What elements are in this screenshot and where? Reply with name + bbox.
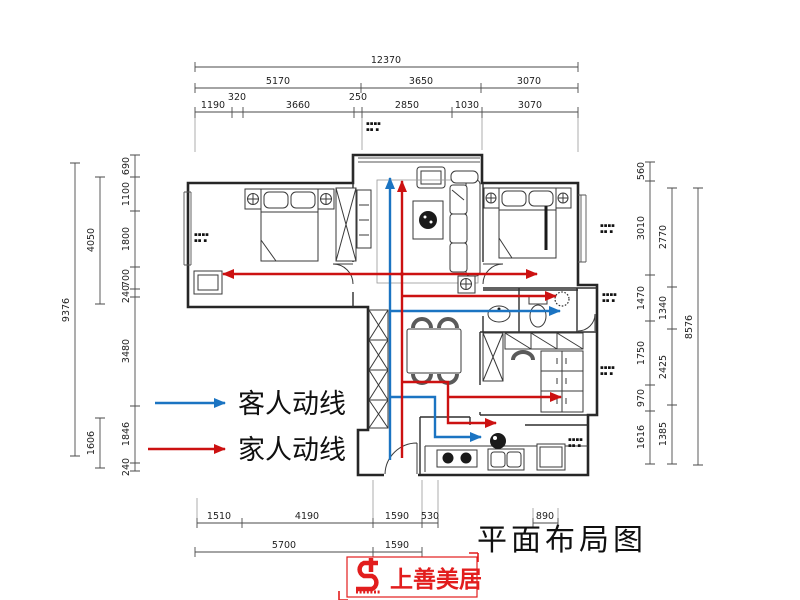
dim-top-row3-0: 1190	[201, 100, 225, 111]
dim-left-total: 9376	[61, 298, 72, 322]
dim-top-row3-6: 3070	[518, 100, 542, 111]
dim-left-inner-6: 1846	[121, 422, 132, 446]
legend-family-label: 家人动线	[238, 435, 346, 465]
kitchen	[425, 433, 588, 472]
annotation: ▪▪ ▪	[600, 229, 613, 235]
desk-chair	[513, 352, 533, 360]
wardrobe-left	[336, 188, 356, 261]
entry-opening	[384, 470, 418, 480]
family-path-kitchen	[402, 382, 496, 423]
dim-bottom-offset: 890	[536, 511, 554, 522]
dim-right-mid-0: 2770	[658, 225, 669, 249]
dim-left-inner-2: 1800	[121, 227, 132, 251]
dim-top-row2-1: 3650	[409, 76, 433, 87]
shower-head	[555, 292, 569, 306]
dim-bottom-row2-1: 1590	[385, 540, 409, 551]
dim-left-inner-0: 690	[121, 157, 132, 175]
cabinet-small	[194, 271, 222, 294]
dim-top-row3-5: 1030	[455, 100, 479, 111]
logo-monogram	[356, 558, 380, 592]
dim-top-row3-1: 320	[228, 92, 246, 103]
bathroom-sink	[488, 306, 510, 322]
dim-bottom-row1-1: 4190	[295, 511, 319, 522]
dimensions-top: 12370 5170 3650 3070 1190 320 3660 250 2…	[195, 55, 578, 152]
legend: 客人动线 家人动线	[148, 389, 346, 465]
dim-bottom-row1-2: 1590	[385, 511, 409, 522]
dim-right-inner-3: 1750	[636, 341, 647, 365]
annotation: ▪▪ ▪	[600, 371, 613, 377]
dining-set	[407, 319, 461, 383]
dim-right-total: 8576	[684, 315, 695, 339]
dim-left-mid-0: 4050	[86, 228, 97, 252]
dim-left-inner-1: 1100	[121, 182, 132, 206]
page-title: 平面布局图	[477, 524, 647, 557]
dim-left-inner-4: 240	[121, 285, 132, 303]
coffee-table	[413, 201, 443, 239]
bed-right	[484, 188, 571, 258]
study-wardrobes	[483, 333, 583, 412]
dim-right-inner-0: 560	[636, 162, 647, 180]
bed-left	[245, 189, 334, 261]
annotation: ▪▪ ▪	[602, 298, 615, 304]
tv	[417, 167, 445, 188]
dim-bottom-row1-3: 530	[421, 511, 439, 522]
dimensions-left: 690 1100 1800 700 240 3480 1846 240 4050…	[61, 155, 140, 476]
floor-plan-page: 12370 5170 3650 3070 1190 320 3660 250 2…	[0, 0, 800, 600]
pot	[490, 433, 506, 449]
dim-left-inner-3: 700	[121, 269, 132, 287]
annotation: ▪▪ ▪	[194, 238, 207, 244]
dim-right-inner-5: 1616	[636, 425, 647, 449]
dim-right-inner-2: 1470	[636, 286, 647, 310]
dim-right-mid-3: 1385	[658, 422, 669, 446]
storage-cabinets	[369, 310, 388, 428]
dim-right-inner-4: 970	[636, 389, 647, 407]
dimensions-right: 560 3010 1470 1750 970 1616 2770 1340 24…	[636, 162, 703, 465]
dim-top-row3-3: 250	[349, 92, 367, 103]
dim-bottom-row1-0: 1510	[207, 511, 231, 522]
dim-top-row3-2: 3660	[286, 100, 310, 111]
logo-name: 上善美居	[390, 566, 482, 592]
tv-cabinet	[357, 190, 371, 248]
fridge	[537, 444, 565, 470]
dim-left-mid-1: 1606	[86, 431, 97, 455]
dim-right-mid-2: 2425	[658, 355, 669, 379]
dim-right-mid-1: 1340	[658, 296, 669, 320]
dim-right-inner-1: 3010	[636, 216, 647, 240]
legend-guest-label: 客人动线	[238, 389, 346, 419]
floor-plan-canvas: 12370 5170 3650 3070 1190 320 3660 250 2…	[0, 0, 800, 600]
dim-left-inner-7: 240	[121, 458, 132, 476]
logo: 上善美居	[339, 553, 482, 600]
dim-left-inner-5: 3480	[121, 339, 132, 363]
sofa	[450, 171, 480, 276]
door-bathroom	[578, 314, 595, 331]
dim-top-total: 12370	[371, 55, 401, 66]
side-table	[458, 276, 475, 293]
window-top-bay	[358, 158, 480, 162]
annotation: ▪▪ ▪	[366, 127, 379, 133]
dim-top-row2-2: 3070	[517, 76, 541, 87]
annotation: ▪▪ ▪	[568, 443, 581, 449]
dim-top-row3-4: 2850	[395, 100, 419, 111]
dim-top-row2-0: 5170	[266, 76, 290, 87]
dim-bottom-row2-0: 5700	[272, 540, 296, 551]
